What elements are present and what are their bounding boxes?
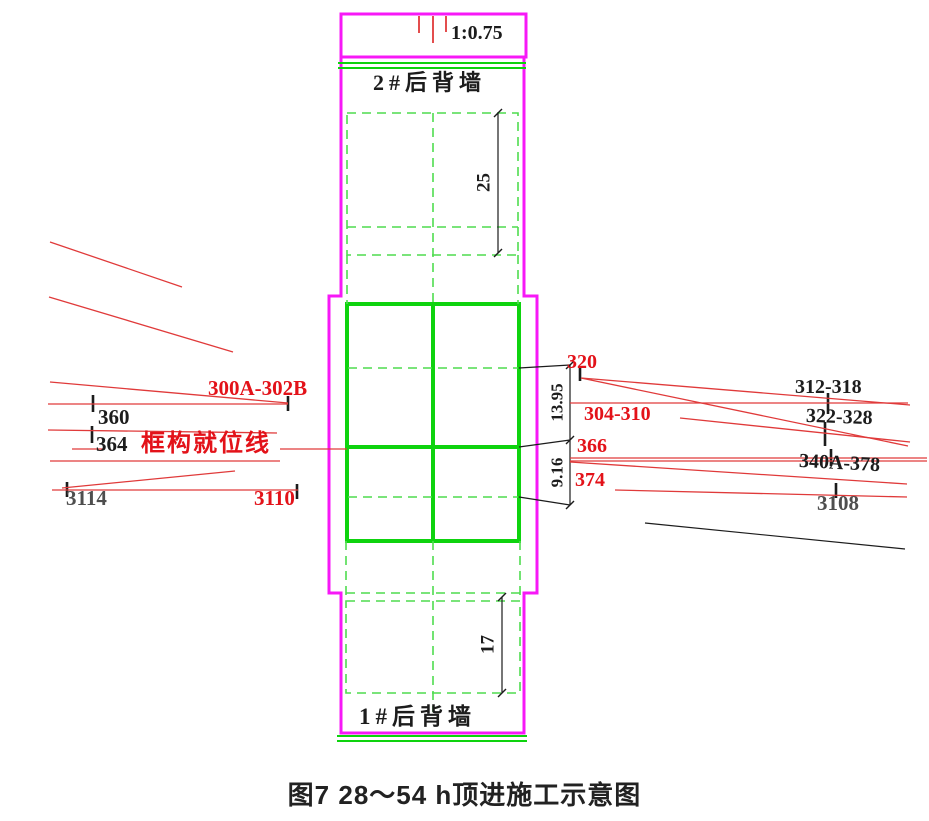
label-3114: 3114 xyxy=(66,488,107,509)
reference-diagonal-line xyxy=(645,523,905,549)
label-3110: 3110 xyxy=(254,488,295,509)
label-3108: 3108 xyxy=(817,493,859,514)
diagram-linework xyxy=(0,0,929,821)
label-304-310: 304-310 xyxy=(584,404,651,424)
jacking-construction-diagram: 1:0.75 2#后背墙 1#后背墙 25 13.95 9.16 17 300A… xyxy=(0,0,929,821)
label-312-318: 312-318 xyxy=(795,377,862,397)
frame-positioning-line-label: 框构就位线 xyxy=(141,432,271,456)
dim-25-label: 25 xyxy=(475,161,494,205)
label-374: 374 xyxy=(575,470,605,490)
dim-13-95-label: 13.95 xyxy=(549,371,566,435)
dim-9-16-label: 9.16 xyxy=(549,441,566,505)
label-320: 320 xyxy=(567,352,597,372)
label-340a-378: 340A-378 xyxy=(799,451,881,475)
back-wall-1-label: 1#后背墙 xyxy=(359,705,476,728)
dim-17-label: 17 xyxy=(479,623,498,667)
frame-current-position xyxy=(347,304,519,541)
figure-caption: 图7 28～54 h顶进施工示意图 xyxy=(0,775,929,812)
scale-box-ticks xyxy=(419,16,446,43)
slope-ratio-label: 1:0.75 xyxy=(451,23,503,43)
label-322-328: 322-328 xyxy=(806,406,873,428)
label-300a-302b: 300A-302B xyxy=(208,378,307,399)
label-364: 364 xyxy=(96,434,128,455)
label-366: 366 xyxy=(577,436,607,456)
back-wall-2-label: 2#后背墙 xyxy=(373,72,486,94)
label-360: 360 xyxy=(98,407,130,428)
jacking-lines-right xyxy=(570,378,927,497)
